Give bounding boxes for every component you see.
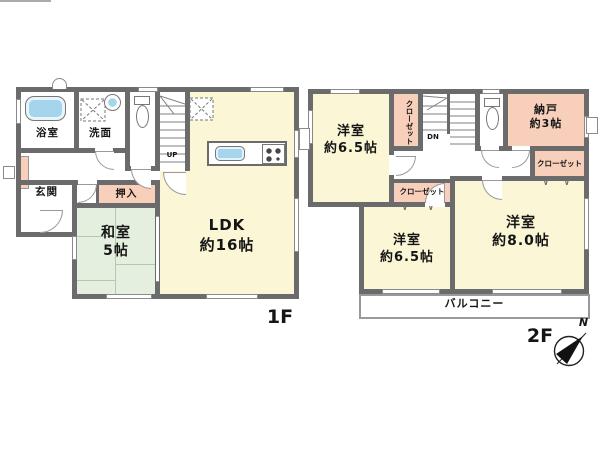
compass-icon xyxy=(550,330,590,370)
compass: N xyxy=(0,0,600,450)
compass-north-label: N xyxy=(576,316,592,330)
floor-plan: 浴室 洗面 玄関 押入 和室 5帖 LDK 約16帖 UP 1F xyxy=(0,0,600,450)
